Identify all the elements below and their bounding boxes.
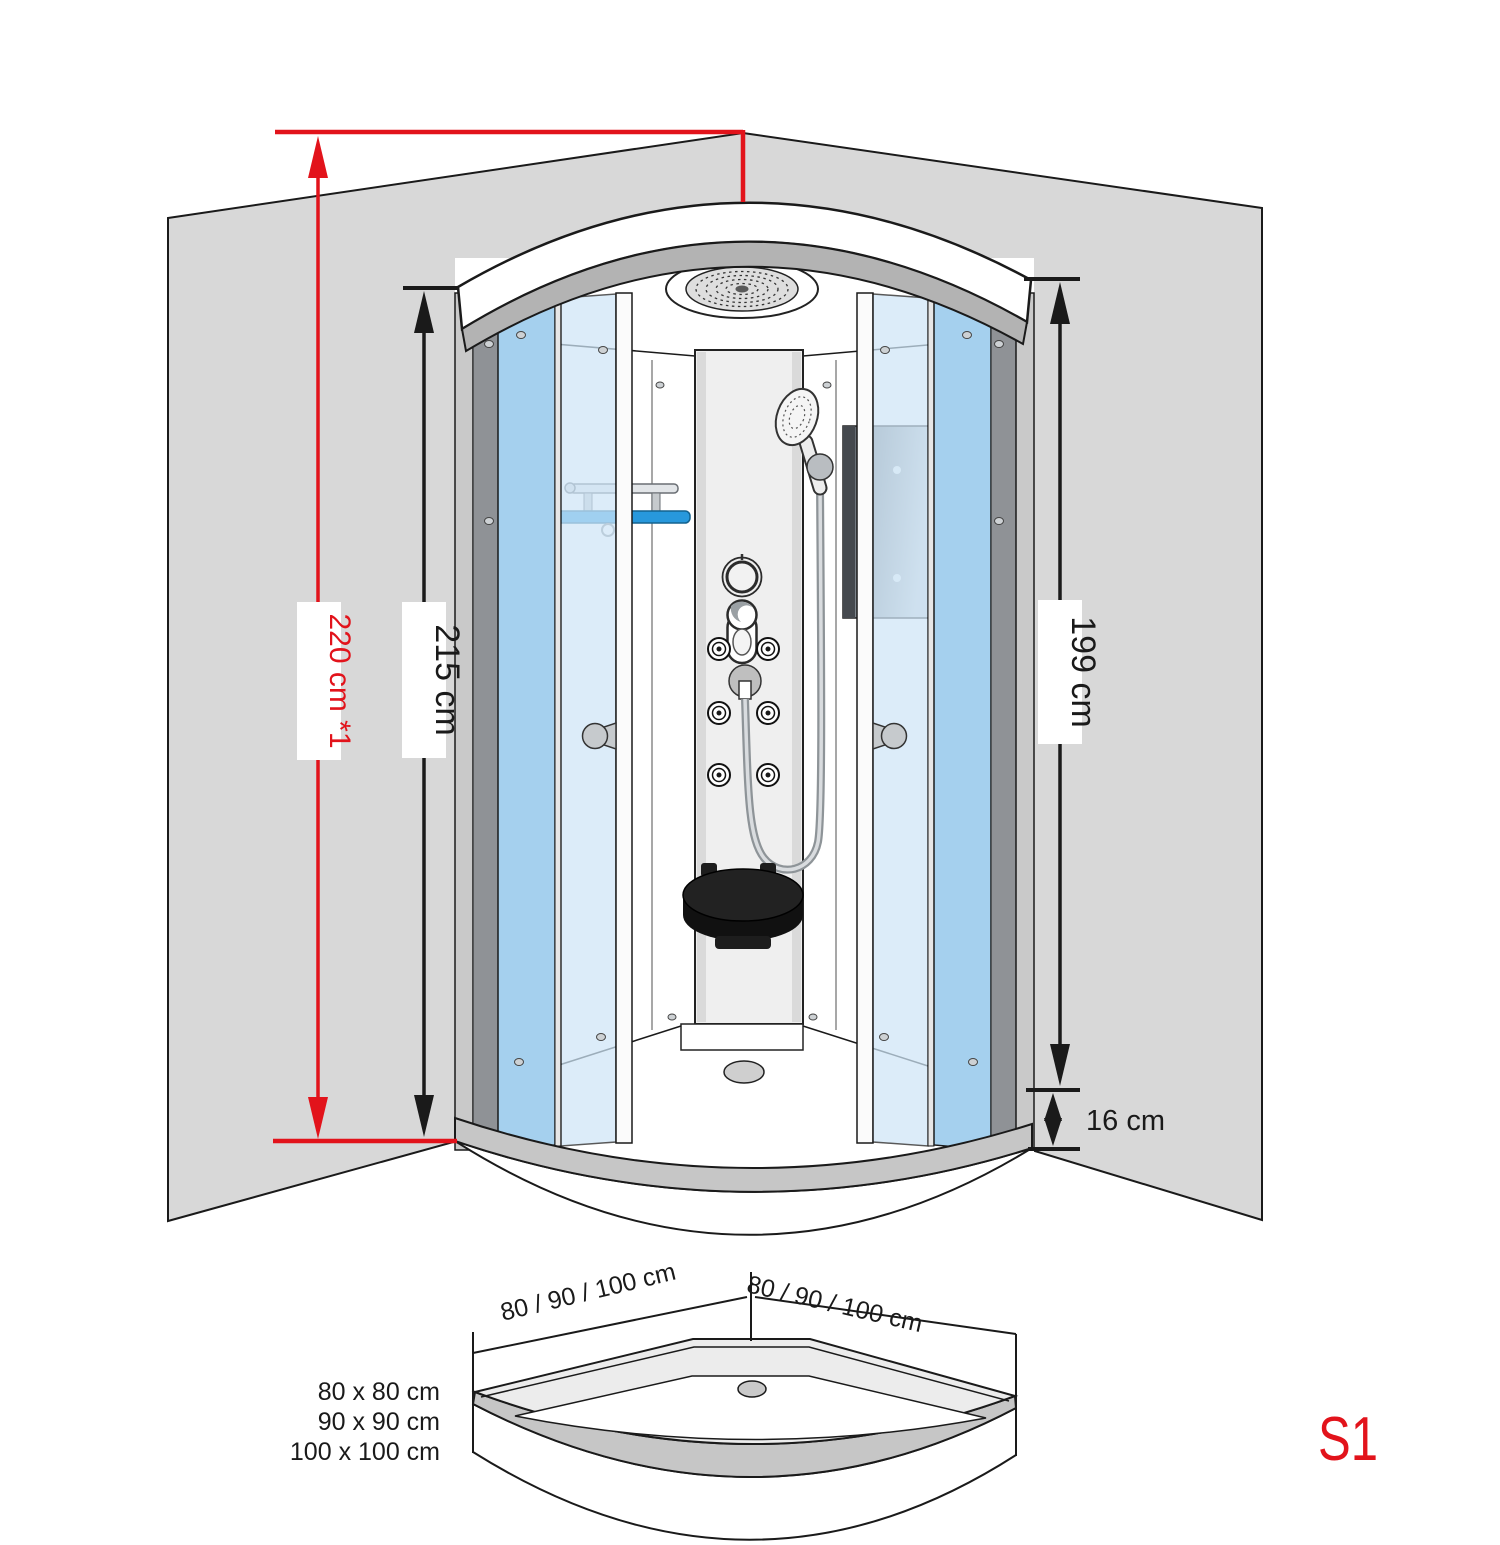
left-glass-divider bbox=[555, 298, 561, 1146]
cabin-height-label: 215 cm bbox=[428, 624, 466, 736]
screw-dot bbox=[809, 1014, 817, 1020]
right-sliding-door-glass bbox=[873, 294, 928, 1146]
tray-width-right-label: 80 / 90 / 100 cm bbox=[744, 1270, 925, 1338]
left-frame-profile bbox=[473, 295, 498, 1148]
floor-step bbox=[681, 1024, 803, 1050]
jet bbox=[708, 702, 730, 724]
jet bbox=[757, 702, 779, 724]
right-door-edge bbox=[857, 293, 873, 1143]
screw-dot bbox=[668, 1014, 676, 1020]
right-outer-frame bbox=[1016, 293, 1034, 1150]
tray-height-label: 16 cm bbox=[1086, 1105, 1165, 1137]
shower-tray-top-view: 80 / 90 / 100 cm 80 / 90 / 100 cm bbox=[473, 1258, 1016, 1540]
jet bbox=[757, 638, 779, 660]
drain-cover bbox=[724, 1061, 764, 1083]
left-door-edge bbox=[616, 293, 632, 1143]
screw-dot bbox=[656, 382, 664, 388]
size-option: 90 x 90 cm bbox=[318, 1408, 440, 1436]
diverter-lever bbox=[728, 601, 757, 664]
size-option: 80 x 80 cm bbox=[318, 1378, 440, 1406]
drain-cover bbox=[738, 1381, 766, 1397]
arrow-up bbox=[308, 136, 328, 178]
shower-holder bbox=[807, 454, 833, 480]
left-sliding-door-glass bbox=[561, 294, 616, 1146]
jet bbox=[708, 638, 730, 660]
right-glass-divider bbox=[928, 298, 934, 1146]
right-door-knob bbox=[873, 723, 907, 749]
right-frame-profile bbox=[991, 295, 1016, 1148]
shower-cabin-dimension-diagram: 220 cm *1 215 cm 199 cm 16 cm bbox=[0, 0, 1500, 1545]
model-code: S1 bbox=[1318, 1405, 1378, 1474]
size-list: 80 x 80 cm 90 x 90 cm 100 x 100 cm bbox=[290, 1378, 440, 1466]
ceiling-height-label: 220 cm *1 bbox=[323, 613, 356, 748]
left-fixed-glass-panel bbox=[498, 298, 555, 1150]
jet bbox=[708, 764, 730, 786]
diagram-canvas: 220 cm *1 215 cm 199 cm 16 cm bbox=[0, 0, 1500, 1545]
size-option: 100 x 100 cm bbox=[290, 1438, 440, 1466]
screw-dot bbox=[823, 382, 831, 388]
right-fixed-glass-panel bbox=[934, 298, 991, 1150]
jet bbox=[757, 764, 779, 786]
left-door-knob bbox=[583, 723, 617, 749]
inner-height-label: 199 cm bbox=[1064, 616, 1102, 728]
